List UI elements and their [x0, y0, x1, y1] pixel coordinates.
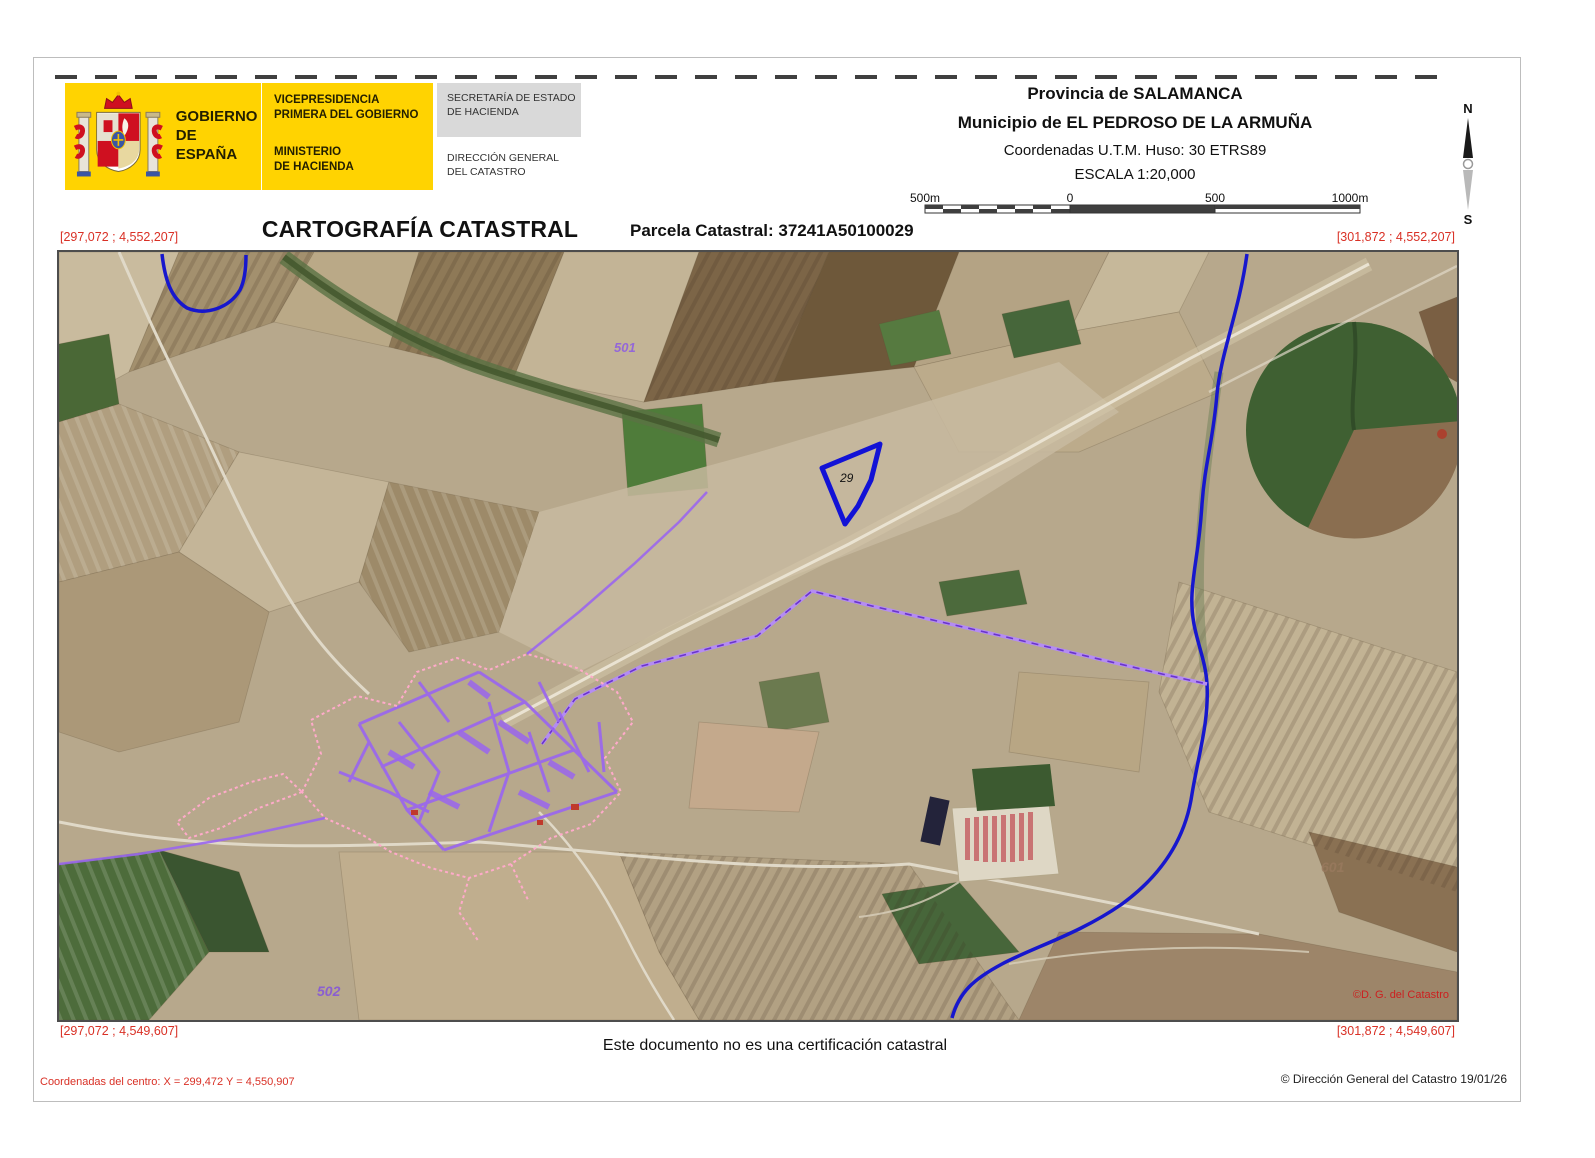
- corner-coord-bottom-right: [301,872 ; 4,549,607]: [1155, 1024, 1455, 1038]
- vicepresidencia-line1: VICEPRESIDENCIA: [274, 93, 433, 108]
- scale-label-0: 0: [1067, 191, 1074, 205]
- direccion-line2: DEL CATASTRO: [447, 165, 581, 179]
- top-perforation-line: [55, 75, 1455, 79]
- scale-label-500m: 500m: [910, 191, 940, 205]
- road-label-501: 501: [614, 340, 636, 355]
- ministerio-line1: MINISTERIO: [274, 145, 433, 160]
- secretaria-line2: DE HACIENDA: [447, 105, 581, 119]
- copyright-text: © Dirección General del Catastro 19/01/2…: [1007, 1072, 1507, 1086]
- parcel-number-label: 29: [839, 471, 854, 485]
- vicepresidencia-line2: PRIMERA DEL GOBIERNO: [274, 108, 433, 123]
- pivot-circle-field: [1246, 322, 1457, 538]
- map-credit-text: ©D. G. del Catastro: [1353, 989, 1449, 1001]
- compass-north-label: N: [1463, 101, 1472, 116]
- gobierno-logo-block: GOBIERNO DE ESPAÑA: [65, 83, 261, 190]
- page-title: CARTOGRAFÍA CATASTRAL: [250, 216, 590, 243]
- road-label-601: 601: [1321, 859, 1345, 875]
- coordenadas-label: Coordenadas U.T.M. Huso: 30 ETRS89: [900, 142, 1370, 159]
- escala-label: ESCALA 1:20,000: [900, 166, 1370, 183]
- corner-coord-top-left: [297,072 ; 4,552,207]: [60, 230, 178, 244]
- cadastral-map: 29 501 502 601 ©D. G. del Catastro: [57, 250, 1459, 1022]
- map-header-info: Provincia de SALAMANCA Municipio de EL P…: [900, 84, 1370, 183]
- corner-coord-top-right: [301,872 ; 4,552,207]: [1155, 230, 1455, 244]
- municipio-label: Municipio de EL PEDROSO DE LA ARMUÑA: [900, 113, 1370, 133]
- provincia-label: Provincia de SALAMANCA: [900, 84, 1370, 104]
- compass-needle-icon: [1460, 116, 1476, 212]
- secretaria-block: SECRETARÍA DE ESTADO DE HACIENDA: [437, 83, 581, 137]
- road-label-502: 502: [317, 983, 341, 999]
- logo-text-line2: DE ESPAÑA: [176, 127, 261, 165]
- spain-coat-of-arms-icon: [73, 88, 164, 186]
- compass-south-label: S: [1464, 212, 1473, 227]
- corner-coord-bottom-left: [297,072 ; 4,549,607]: [60, 1024, 178, 1038]
- direccion-line1: DIRECCIÓN GENERAL: [447, 151, 581, 165]
- scale-bar-solid: [1070, 205, 1215, 213]
- cadastral-document-page: GOBIERNO DE ESPAÑA VICEPRESIDENCIA PRIME…: [0, 0, 1595, 1158]
- satellite-map-image: 29 501 502 601 ©D. G. del Catastro: [59, 252, 1457, 1020]
- direccion-block: DIRECCIÓN GENERAL DEL CATASTRO: [437, 137, 581, 190]
- ministry-block: VICEPRESIDENCIA PRIMERA DEL GOBIERNO MIN…: [262, 83, 433, 190]
- disclaimer-text: Este documento no es una certificación c…: [275, 1037, 1275, 1055]
- scale-bar: 500m 0 500 1000m: [898, 190, 1370, 218]
- north-arrow: N S: [1448, 101, 1488, 227]
- scale-bar-checker: [925, 205, 1070, 213]
- secretaria-line1: SECRETARÍA DE ESTADO: [447, 91, 581, 105]
- center-coordinates-text: Coordenadas del centro: X = 299,472 Y = …: [40, 1076, 295, 1088]
- parcela-catastral-label: Parcela Catastral: 37241A50100029: [630, 221, 914, 241]
- scale-label-1000m: 1000m: [1332, 191, 1369, 205]
- scale-bar-half: [1215, 205, 1360, 213]
- ministerio-line2: DE HACIENDA: [274, 160, 433, 175]
- logo-text-line1: GOBIERNO: [176, 108, 261, 127]
- scale-label-500: 500: [1205, 191, 1225, 205]
